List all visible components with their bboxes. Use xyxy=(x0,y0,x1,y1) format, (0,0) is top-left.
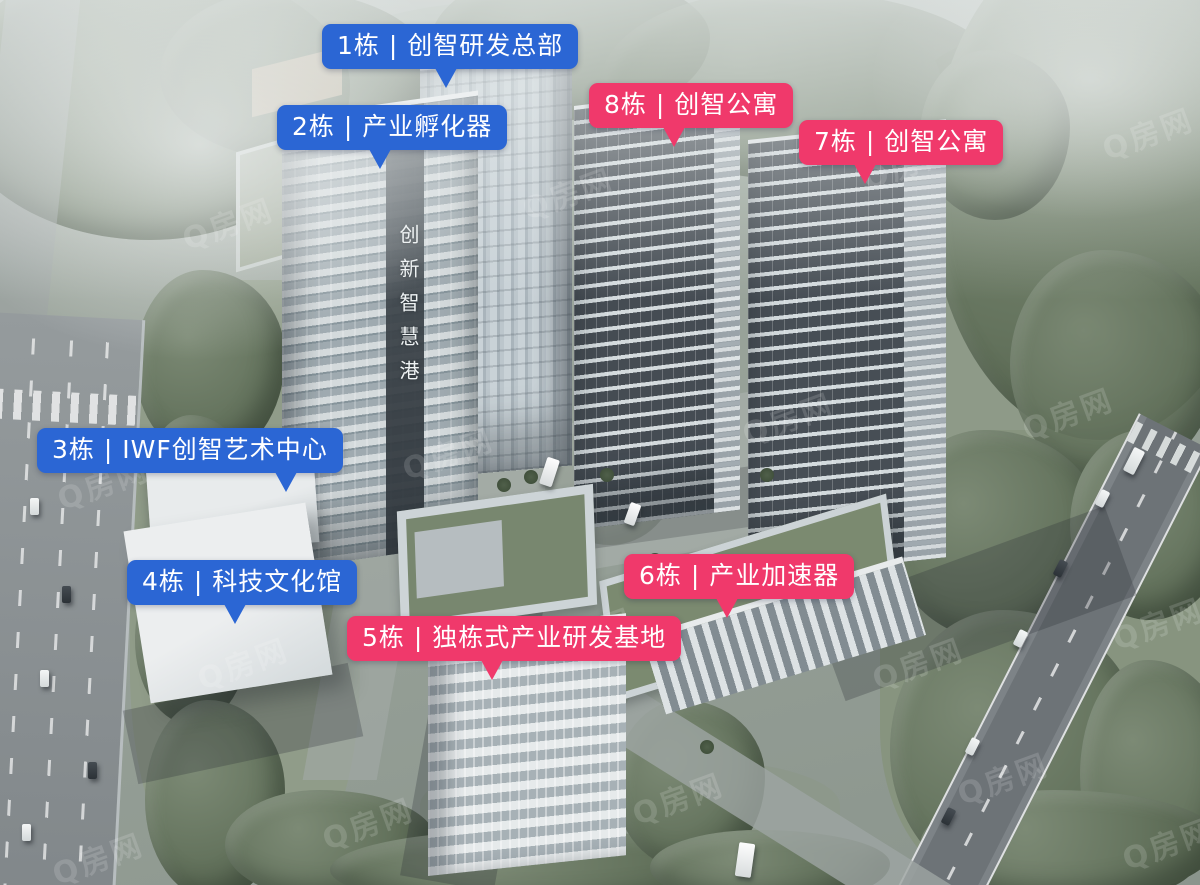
label-text: 6栋 | 产业加速器 xyxy=(639,561,839,590)
palm-tree xyxy=(700,740,714,754)
label-building-3: 3栋 | IWF创智艺术中心 xyxy=(37,428,343,473)
label-building-8: 8栋 | 创智公寓 xyxy=(589,83,793,128)
label-pointer xyxy=(275,472,297,492)
building-tower-8 xyxy=(574,86,740,530)
car xyxy=(40,670,49,687)
building-5-courtyard xyxy=(397,484,597,632)
road-left xyxy=(0,313,145,885)
label-building-5: 5栋 | 独栋式产业研发基地 xyxy=(347,616,681,661)
crosswalk xyxy=(0,388,138,425)
label-pointer xyxy=(481,660,503,680)
label-text: 2栋 | 产业孵化器 xyxy=(292,112,492,141)
label-text: 7栋 | 创智公寓 xyxy=(814,127,988,156)
label-text: 4栋 | 科技文化馆 xyxy=(142,567,342,596)
label-text: 1栋 | 创智研发总部 xyxy=(337,31,563,60)
palm-tree xyxy=(497,478,511,492)
palm-tree xyxy=(600,468,614,482)
palm-tree xyxy=(760,468,774,482)
car xyxy=(22,824,31,841)
label-pointer xyxy=(663,127,685,147)
label-pointer xyxy=(435,68,457,88)
label-building-7: 7栋 | 创智公寓 xyxy=(799,120,1003,165)
label-text: 8栋 | 创智公寓 xyxy=(604,90,778,119)
car xyxy=(62,586,71,603)
label-pointer xyxy=(854,164,876,184)
label-pointer xyxy=(369,149,391,169)
label-building-6: 6栋 | 产业加速器 xyxy=(624,554,854,599)
label-pointer xyxy=(224,604,246,624)
label-building-1: 1栋 | 创智研发总部 xyxy=(322,24,578,69)
palm-tree xyxy=(524,470,538,484)
label-text: 5栋 | 独栋式产业研发基地 xyxy=(362,623,666,652)
label-building-4: 4栋 | 科技文化馆 xyxy=(127,560,357,605)
label-building-2: 2栋 | 产业孵化器 xyxy=(277,105,507,150)
label-text: 3栋 | IWF创智艺术中心 xyxy=(52,435,328,464)
roof-pad xyxy=(414,520,503,599)
aerial-rendering: 创新智慧港 Q房网Q房网Q房网Q房网Q房网Q房网Q房网Q房网Q房网Q房网Q房网Q… xyxy=(0,0,1200,885)
car xyxy=(88,762,97,779)
car xyxy=(30,498,39,515)
label-pointer xyxy=(716,598,738,618)
building-facade-sign: 创新智慧港 xyxy=(394,224,423,394)
